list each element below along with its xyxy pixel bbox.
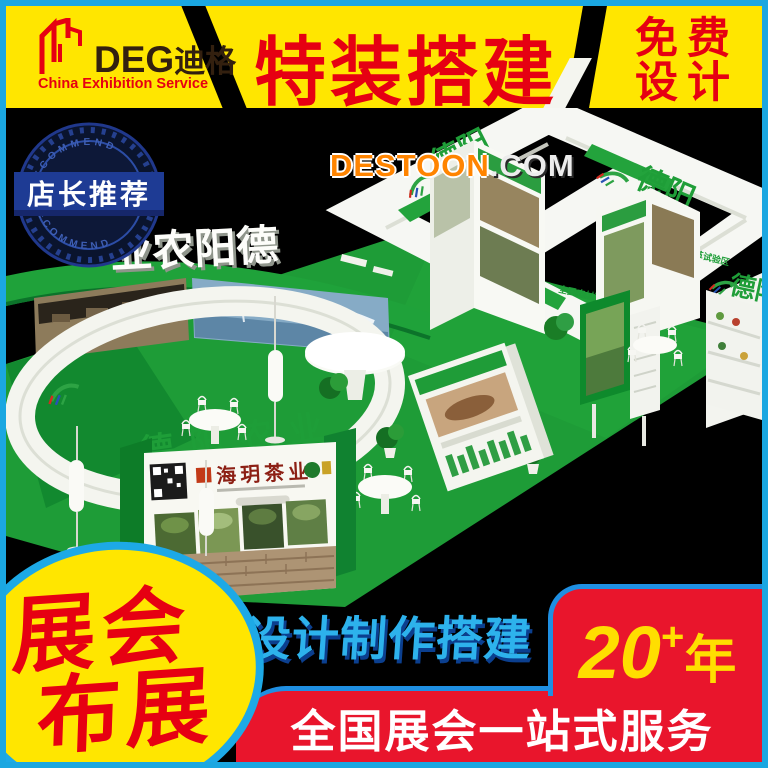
- brand-deg: DEG: [94, 39, 174, 80]
- footer-bar-text: 全国展会一站式服务: [290, 695, 713, 760]
- brand-cn: 迪格: [174, 44, 236, 79]
- brand-name: DEG迪格: [94, 36, 236, 81]
- footer-left-line2: 布展: [36, 664, 218, 760]
- badge-label: 店长推荐: [27, 179, 151, 210]
- free-design-label: 免费 设计: [606, 16, 762, 108]
- footer-left-text: 展会 布展: [8, 581, 220, 761]
- free-line2: 设计: [635, 62, 739, 106]
- company-logo: DEG迪格 China Exhibition Service: [32, 14, 232, 106]
- free-line1: 免费: [635, 18, 739, 62]
- years-number: 20: [579, 616, 661, 690]
- right-shelf-unit: [706, 290, 762, 420]
- footer-mid-title: 设计制作搭建: [242, 600, 535, 669]
- watermark-name: DESTOON: [330, 148, 490, 183]
- shop-recommend-badge: RECOMMEND RECOMMEND 店长推荐: [14, 120, 164, 270]
- brand-tagline: China Exhibition Service: [38, 76, 208, 92]
- watermark: DESTOON.COM: [330, 148, 575, 184]
- years-plus: +: [661, 615, 684, 660]
- footer-bottom-bar: 全国展会一站式服务: [236, 686, 768, 768]
- mid-green-wall: [580, 290, 630, 405]
- promo-image: DEG迪格 China Exhibition Service 特装搭建 免费 设…: [0, 0, 768, 768]
- years-unit: 年: [684, 633, 736, 690]
- tea-logo-seal: [196, 467, 212, 483]
- main-banner-title: 特装搭建: [246, 20, 566, 108]
- years-box: 20+年: [548, 584, 762, 696]
- header-band: DEG迪格 China Exhibition Service 特装搭建 免费 设…: [6, 6, 762, 108]
- watermark-tld: .COM: [490, 148, 575, 183]
- deg-building-icon: [34, 18, 92, 78]
